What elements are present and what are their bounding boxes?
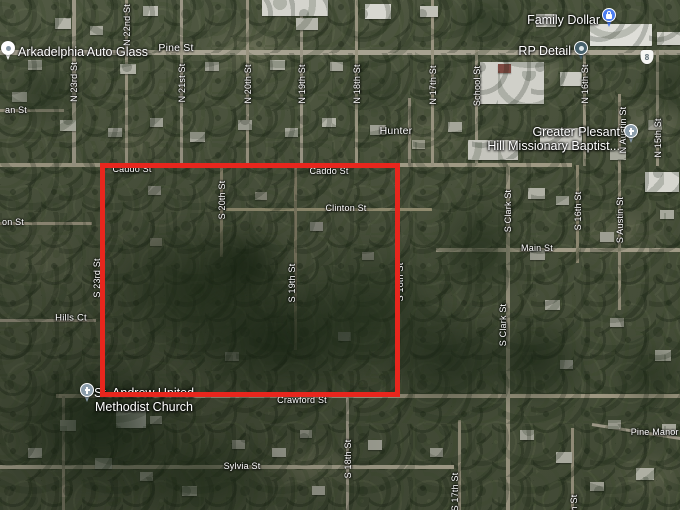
building	[285, 128, 298, 137]
road-segment	[180, 0, 183, 166]
building	[368, 440, 382, 450]
building	[536, 14, 556, 27]
pin-tip	[628, 136, 634, 146]
poi-label-line: Arkadelphia Auto Glass	[18, 45, 148, 59]
building	[60, 120, 76, 131]
building	[95, 458, 112, 469]
rp-detail-label[interactable]: RP Detail	[518, 44, 571, 58]
building	[480, 62, 544, 104]
forest-patch	[630, 35, 680, 135]
street-label: N 22nd St	[122, 4, 132, 46]
road-segment	[72, 0, 76, 166]
selection-rectangle	[100, 163, 400, 397]
poi-label-line: Family Dollar	[527, 13, 600, 27]
street-label: Pine Manor Dr	[631, 427, 680, 437]
forest-patch	[415, 175, 545, 325]
street-label: S 17th St	[450, 473, 460, 510]
building	[143, 6, 158, 16]
forest-patch	[460, 295, 610, 425]
building	[657, 32, 680, 45]
open-lot-patch	[85, 115, 185, 170]
pin-tip	[84, 395, 90, 405]
building	[430, 448, 443, 457]
open-lot-patch	[185, 15, 315, 85]
street-label: N 20th St	[243, 64, 253, 103]
road-segment	[408, 98, 411, 166]
road-segment	[355, 0, 358, 166]
open-lot-patch	[610, 95, 680, 150]
road-segment	[506, 165, 510, 510]
road-segment	[0, 222, 92, 225]
road-segment	[0, 319, 96, 322]
building	[545, 300, 560, 310]
road-segment	[576, 165, 579, 263]
building	[560, 360, 573, 369]
street-label: Hunter	[380, 125, 413, 137]
pin-tip	[578, 53, 584, 63]
building	[238, 120, 252, 130]
building	[448, 122, 462, 132]
building	[468, 140, 518, 160]
building	[556, 196, 569, 205]
street-label: on St	[2, 217, 24, 227]
forest-patch	[0, 45, 110, 140]
building	[608, 420, 621, 429]
building	[520, 430, 534, 440]
street-label: Sylvia St	[224, 461, 261, 471]
street-label: Hills Ct	[55, 313, 87, 324]
open-lot-patch	[555, 195, 680, 270]
building	[636, 468, 654, 480]
open-lot-patch	[375, 105, 485, 170]
street-label: N 21st St	[177, 64, 187, 103]
building	[540, 128, 582, 150]
road-segment	[346, 396, 349, 510]
street-label: N 18th St	[352, 64, 362, 103]
church-pin-icon	[624, 124, 638, 138]
building	[182, 486, 197, 496]
building	[412, 140, 425, 149]
street-label: N 23rd St	[69, 62, 79, 102]
building	[60, 420, 76, 431]
building	[655, 350, 671, 361]
building	[150, 118, 163, 127]
road-segment	[0, 465, 454, 469]
road-segment	[436, 248, 680, 252]
pin-tip	[5, 53, 11, 63]
building	[312, 486, 325, 495]
building	[498, 64, 511, 73]
detail-pin-icon	[574, 41, 588, 55]
building	[560, 72, 582, 86]
greater-plesant-hill-missionary-baptist-label[interactable]: Greater PlesantHill Missionary Baptist..…	[487, 125, 620, 153]
building	[365, 4, 391, 19]
building	[296, 18, 318, 30]
building	[140, 472, 153, 481]
building	[645, 172, 679, 192]
street-label: S Austin St	[615, 197, 625, 243]
building	[528, 188, 545, 199]
road-segment	[246, 0, 249, 166]
detail-dot-icon	[579, 46, 584, 51]
road-segment	[618, 94, 621, 310]
open-lot-patch	[0, 195, 90, 315]
generic-pin-icon	[1, 41, 15, 55]
road-segment	[592, 423, 680, 440]
church-cross-icon	[84, 387, 91, 394]
building	[190, 132, 205, 142]
highway-shield: 8	[641, 50, 654, 64]
building	[648, 120, 662, 130]
pin-tip	[606, 20, 612, 30]
building	[420, 6, 438, 17]
forest-patch	[330, 55, 420, 125]
street-label: N 19th St	[297, 64, 307, 103]
road-segment	[583, 50, 586, 166]
church-pin-icon	[80, 383, 94, 397]
street-label: N 15th St	[653, 118, 663, 157]
street-label: S Clark St	[503, 190, 513, 233]
road-segment	[300, 0, 303, 166]
street-label: Main St	[521, 243, 553, 253]
building	[330, 62, 343, 71]
road-segment	[571, 428, 574, 510]
building	[262, 0, 328, 16]
building	[55, 18, 71, 29]
poi-label-line: RP Detail	[518, 44, 571, 58]
building	[120, 64, 136, 74]
street-label: Pine St	[158, 42, 193, 54]
road-segment	[0, 109, 64, 112]
building	[90, 26, 103, 35]
building	[590, 24, 652, 46]
church-cross-icon	[628, 128, 635, 135]
forest-patch	[80, 415, 320, 510]
building	[660, 210, 674, 219]
open-lot-patch	[465, 35, 585, 110]
building	[590, 482, 604, 491]
poi-label-line: Hill Missionary Baptist...	[487, 139, 620, 153]
building	[150, 416, 162, 424]
building	[600, 232, 614, 242]
building	[530, 250, 545, 260]
building	[272, 448, 286, 457]
street-label: N Austin St	[618, 107, 628, 154]
building	[28, 60, 42, 70]
family-dollar-label[interactable]: Family Dollar	[527, 13, 600, 27]
forest-patch	[595, 325, 680, 425]
building	[610, 318, 624, 327]
building	[610, 150, 626, 160]
road-segment	[0, 50, 680, 55]
shop-pin-icon	[602, 8, 616, 22]
road-segment	[431, 0, 434, 166]
street-label: S 18th St	[343, 440, 353, 479]
road-segment	[475, 50, 478, 166]
arkadelphia-auto-glass-label[interactable]: Arkadelphia Auto Glass	[18, 45, 148, 59]
building	[556, 452, 572, 463]
road-segment	[125, 0, 128, 166]
building	[108, 128, 122, 137]
street-label: S 15th St	[569, 495, 579, 510]
building	[662, 424, 676, 434]
poi-label-line: Methodist Church	[94, 400, 194, 414]
satellite-map[interactable]: Pine Stan StN 23rd StN 22nd StN 21st StN…	[0, 0, 680, 510]
building	[370, 125, 386, 135]
street-label: N 16th St	[580, 64, 590, 103]
building	[28, 448, 42, 458]
road-segment	[458, 420, 461, 510]
road-segment	[656, 50, 659, 166]
poi-dot-icon	[6, 46, 11, 51]
street-label: S Clark St	[498, 304, 508, 347]
shopping-bag-icon	[606, 14, 612, 19]
open-lot-patch	[235, 435, 385, 500]
building	[116, 408, 146, 428]
street-label: S 16th St	[573, 192, 583, 231]
open-lot-patch	[595, 445, 680, 510]
building	[12, 92, 27, 102]
street-label: an St	[5, 105, 27, 115]
poi-label-line: Greater Plesant	[487, 125, 620, 139]
forest-patch	[435, 0, 535, 55]
street-label: School St	[472, 66, 482, 106]
building	[232, 440, 245, 449]
road-segment	[62, 396, 65, 510]
building	[322, 118, 336, 127]
building	[205, 62, 219, 71]
building	[300, 430, 312, 438]
street-label: N 17th St	[428, 65, 438, 104]
building	[270, 60, 285, 70]
